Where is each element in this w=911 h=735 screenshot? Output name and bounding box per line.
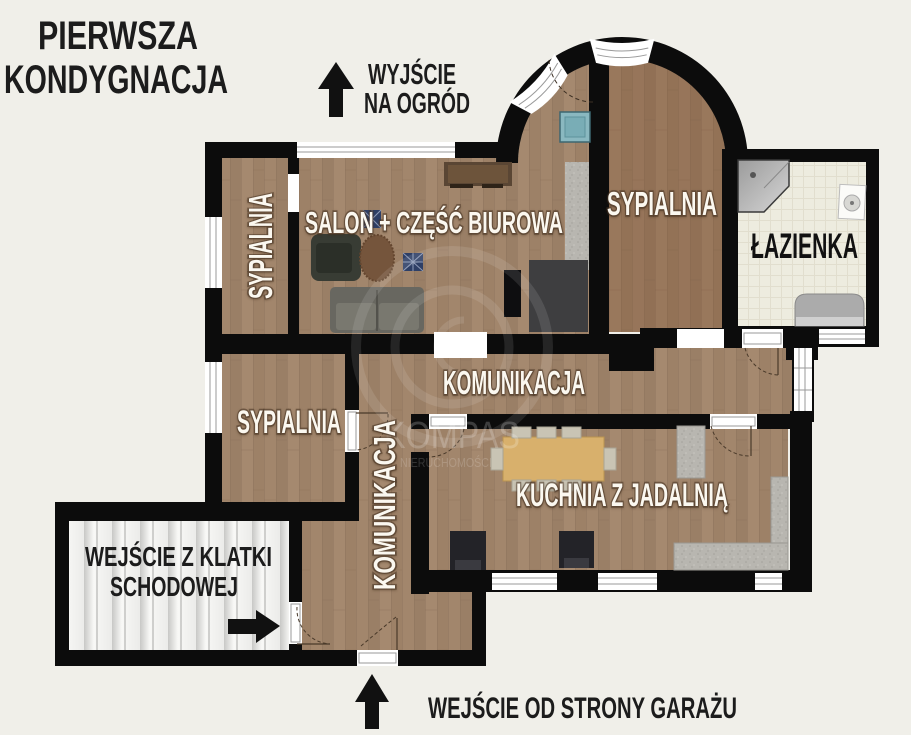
svg-text:SYPIALNIA: SYPIALNIA bbox=[242, 193, 279, 299]
svg-text:KUCHNIA Z JADALNIĄ: KUCHNIA Z JADALNIĄ bbox=[516, 477, 728, 513]
svg-text:SYPIALNIA: SYPIALNIA bbox=[237, 404, 341, 440]
svg-text:KOMUNIKACJA: KOMUNIKACJA bbox=[443, 364, 585, 401]
svg-text:SALON + CZĘŚĆ BIUROWA: SALON + CZĘŚĆ BIUROWA bbox=[305, 204, 563, 240]
svg-text:WEJŚCIE Z KLATKI: WEJŚCIE Z KLATKI bbox=[85, 541, 272, 572]
svg-text:WYJŚCIE: WYJŚCIE bbox=[368, 57, 456, 91]
svg-text:SYPIALNIA: SYPIALNIA bbox=[607, 185, 717, 222]
svg-text:NIERUCHOMOŚCI: NIERUCHOMOŚCI bbox=[400, 455, 492, 470]
svg-text:SCHODOWEJ: SCHODOWEJ bbox=[110, 571, 238, 602]
svg-text:KOMUNIKACJA: KOMUNIKACJA bbox=[367, 420, 402, 590]
svg-text:WEJŚCIE OD STRONY GARAŻU: WEJŚCIE OD STRONY GARAŻU bbox=[428, 691, 737, 725]
svg-text:ŁAZIENKA: ŁAZIENKA bbox=[751, 227, 858, 266]
svg-text:PIERWSZA: PIERWSZA bbox=[38, 14, 198, 58]
svg-text:NA OGRÓD: NA OGRÓD bbox=[364, 86, 470, 120]
svg-text:KONDYGNACJA: KONDYGNACJA bbox=[4, 58, 228, 102]
svg-text:KOMPAS: KOMPAS bbox=[384, 415, 520, 457]
